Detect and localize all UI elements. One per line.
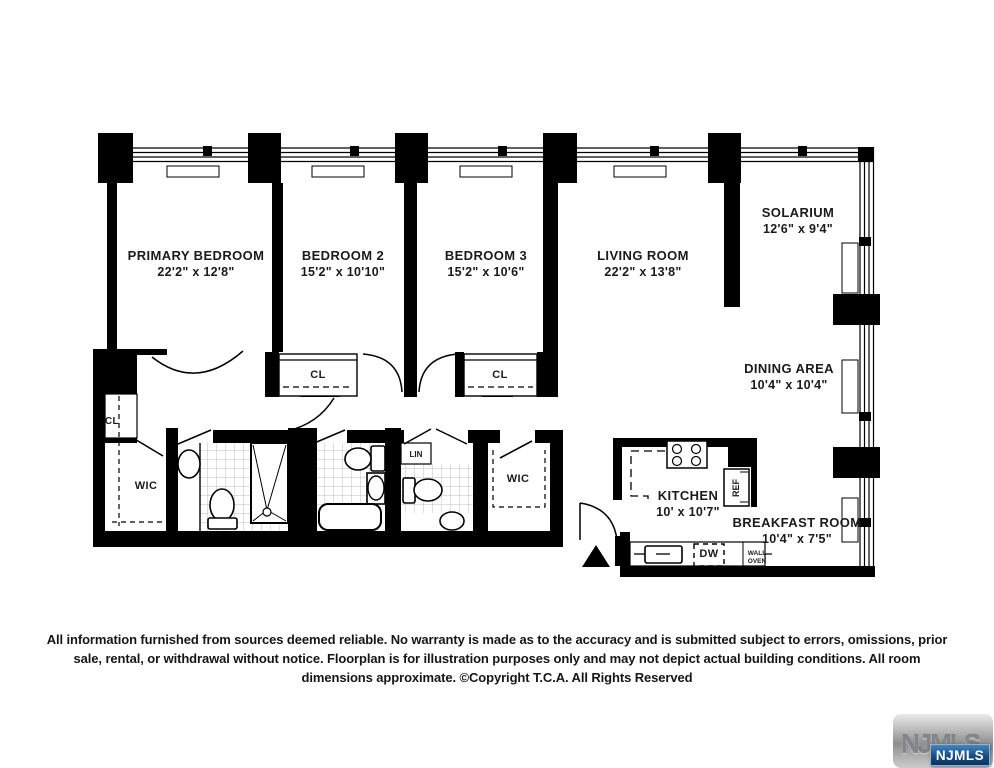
window-band-top (98, 148, 874, 162)
label-linen: LIN (410, 450, 423, 459)
disclaimer-text: All information furnished from sources d… (45, 630, 950, 687)
label-wall-oven-2: OVEN (748, 558, 767, 565)
njmls-logo: NJMLS NJMLS (893, 714, 993, 768)
floorplan-page: PRIMARY BEDROOM 22'2" x 12'8" BEDROOM 2 … (0, 0, 994, 768)
room-label-kitchen: KITCHEN (658, 488, 719, 503)
room-dims-kitchen: 10' x 10'7" (656, 505, 720, 519)
bathroom2-toilet (345, 446, 385, 471)
room-dims-bedroom-3: 15'2" x 10'6" (447, 265, 524, 279)
bathroom2-sink (367, 473, 385, 504)
label-wall-oven-1: WALL (748, 550, 766, 557)
window-band-right (860, 147, 874, 577)
room-label-bedroom-3: BEDROOM 3 (445, 248, 527, 263)
bathroom1-vanity-sink (178, 443, 200, 531)
label-bedroom2-closet: CL (310, 369, 325, 381)
room-label-bedroom-2: BEDROOM 2 (302, 248, 384, 263)
room-label-solarium: SOLARIUM (762, 205, 835, 220)
label-bedroom3-closet: CL (492, 369, 507, 381)
label-hall-wic: WIC (507, 473, 530, 485)
room-label-dining-area: DINING AREA (744, 361, 834, 376)
label-dishwasher: DW (699, 548, 718, 560)
njmls-badge: NJMLS (930, 744, 990, 766)
room-dims-dining-area: 10'4" x 10'4" (750, 378, 827, 392)
primary-closet (105, 394, 137, 526)
room-dims-solarium: 12'6" x 9'4" (763, 222, 833, 236)
label-primary-wic: WIC (135, 480, 158, 492)
stove (667, 441, 707, 468)
room-dims-primary-bedroom: 22'2" x 12'8" (157, 265, 234, 279)
room-dims-bedroom-2: 15'2" x 10'10" (301, 265, 386, 279)
room-label-primary-bedroom: PRIMARY BEDROOM (128, 248, 265, 263)
room-dims-living-room: 22'2" x 13'8" (604, 265, 681, 279)
shower (251, 443, 288, 523)
label-refrigerator: REF (731, 478, 741, 497)
entry-arrow (582, 545, 610, 567)
floorplan-drawing: PRIMARY BEDROOM 22'2" x 12'8" BEDROOM 2 … (0, 0, 994, 620)
entry-door (580, 503, 617, 540)
room-label-living-room: LIVING ROOM (597, 248, 689, 263)
powder-toilet (403, 478, 442, 503)
bathtub (319, 504, 381, 530)
kitchen-lower-counter (630, 542, 765, 566)
powder-sink (440, 512, 464, 530)
room-label-breakfast-room: BREAKFAST ROOM (732, 515, 861, 530)
room-dims-breakfast-room: 10'4" x 7'5" (762, 532, 832, 546)
label-primary-closet: CL (105, 416, 119, 427)
